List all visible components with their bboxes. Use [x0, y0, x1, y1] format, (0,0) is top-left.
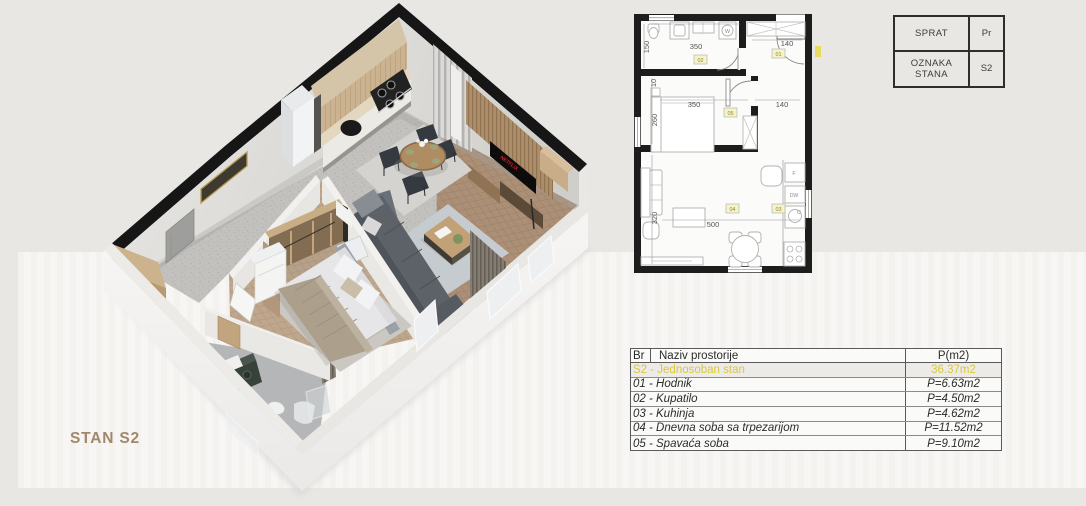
svg-text:140: 140	[781, 39, 794, 48]
svg-text:350: 350	[690, 42, 703, 51]
svg-text:500: 500	[707, 220, 720, 229]
svg-text:W: W	[725, 29, 731, 35]
svg-text:10: 10	[649, 79, 658, 87]
svg-text:04: 04	[729, 207, 735, 213]
svg-text:320: 320	[650, 212, 659, 225]
svg-text:03: 03	[775, 207, 781, 213]
svg-text:350: 350	[688, 100, 701, 109]
svg-text:150: 150	[642, 41, 651, 54]
svg-text:260: 260	[650, 114, 659, 127]
svg-text:DW: DW	[790, 193, 799, 199]
svg-text:01: 01	[775, 52, 781, 58]
svg-text:02: 02	[697, 58, 703, 64]
svg-text:05: 05	[727, 111, 733, 117]
svg-text:140: 140	[776, 100, 789, 109]
